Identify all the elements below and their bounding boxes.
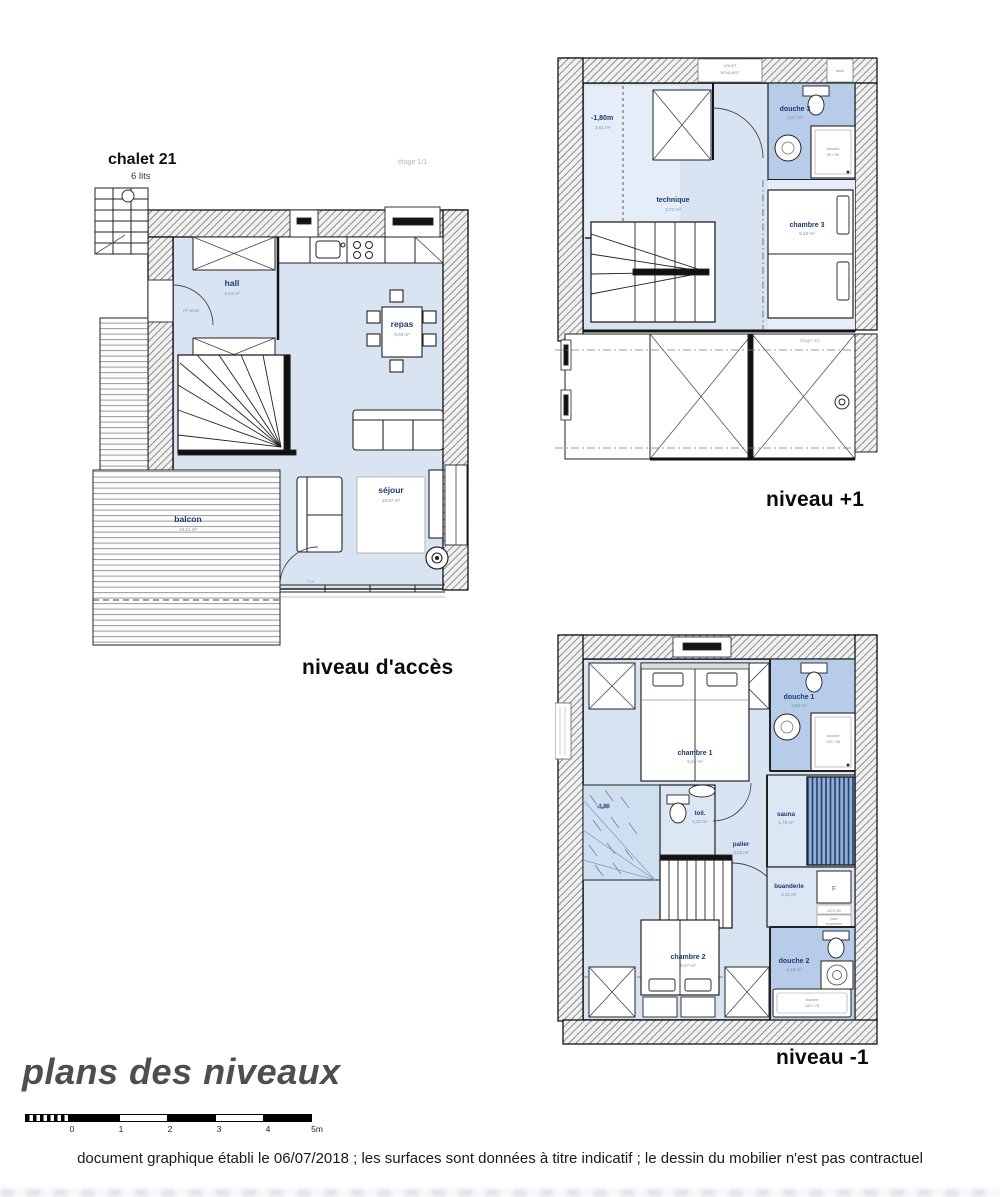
shower2-size-line2: 160 / 75 (805, 1003, 820, 1008)
pillow-icon (837, 262, 849, 300)
shower1-size-line2: 120 / 90 (826, 739, 841, 744)
toilet-icon (806, 672, 822, 692)
faucet-icon (341, 243, 345, 247)
kitchen-sink-icon (316, 241, 340, 258)
volet-annotation-line2: ROULANT (720, 70, 740, 75)
room-label-technique: technique (656, 197, 689, 204)
volet-annotation-line1: VOLET (723, 63, 737, 68)
window-annotation: fixe (307, 579, 315, 585)
bed-bench (643, 997, 677, 1017)
chair-icon (367, 311, 380, 323)
room-label-chambre1: chambre 1 (677, 750, 712, 757)
room-label-chambre3: chambre 3 (789, 222, 824, 229)
room-sauna: sauna 1,78 m² (767, 775, 855, 867)
vase-annotation-line1: vase (830, 917, 837, 921)
scale-bar-segment (215, 1114, 264, 1122)
caption-access-level: niveau d'accès (302, 656, 453, 680)
caption-level-plus1: niveau +1 (766, 488, 864, 512)
toilet-tank-icon (803, 86, 829, 96)
room-label-balcon: balcon (174, 514, 201, 524)
room-label-palier: palier (733, 841, 750, 848)
room-area-douche2: 4,19 m² (786, 967, 802, 972)
cropped-text-strip (0, 1189, 1000, 1197)
scale-bar-fine-segment (25, 1114, 72, 1122)
scale-tick: 0 (70, 1124, 75, 1134)
shower-size-line2: 90 / 90 (827, 152, 840, 157)
acv-annotation: ACV 1B (827, 909, 841, 913)
scale-tick: 4 (266, 1124, 271, 1134)
shower2-size-line1: douche (805, 997, 819, 1002)
scale-tick: 5m (311, 1124, 323, 1134)
window-annotation-box (555, 703, 571, 759)
chair-icon (423, 334, 436, 346)
toilet-icon (808, 95, 824, 115)
staircase-winder (591, 222, 715, 322)
toilet-icon (828, 938, 844, 958)
room-label-hall: hall (225, 278, 240, 288)
room-label-sejour: séjour (378, 485, 404, 495)
shower1-size-line1: douche (826, 733, 840, 738)
door-annotation: PF 90/90 (183, 308, 200, 313)
chair-icon (423, 311, 436, 323)
chalet-beds: 6 lits (131, 171, 151, 182)
room-label-niche: -1,80m (591, 115, 613, 122)
room-label-toilette: toil. (695, 810, 706, 817)
room-area-douche3: 2,97 m² (787, 115, 803, 120)
exterior-stairs (95, 188, 148, 254)
scale-bar-labels: 0 1 2 3 4 5m (25, 1124, 325, 1135)
pillow-icon (685, 979, 711, 991)
room-area-chambre2: 9,47 m² (680, 963, 696, 968)
room-area-technique: 3,71 m² (665, 207, 681, 212)
pillow-icon (707, 673, 737, 686)
room-area-toilette: 1,32 m² (692, 819, 708, 824)
staircase-straight (660, 855, 732, 928)
bed-bench (681, 997, 715, 1017)
scale-bar-segment (119, 1114, 168, 1122)
tv-bench (429, 470, 443, 538)
washbasin-icon (775, 135, 801, 161)
pillow-icon (649, 979, 675, 991)
scale-bar-segment (263, 1114, 312, 1122)
scale-bar-segment (71, 1114, 120, 1122)
disclaimer-note: document graphique établi le 06/07/2018 … (0, 1150, 1000, 1167)
caption-level-minus1: niveau -1 (776, 1046, 869, 1070)
room-area-douche1: 3,50 m² (791, 703, 807, 708)
seuil-annotation: seuil (836, 68, 844, 73)
chair-icon (390, 290, 403, 302)
room-buanderie: F ACV 1B vase expansion buanderie 2,31 m… (767, 867, 855, 928)
headboard (641, 663, 749, 669)
room-area-hall: 4,34 m² (224, 291, 240, 296)
room-label-chambre2: chambre 2 (670, 954, 705, 961)
toilet-icon (670, 803, 686, 823)
staircase-winder (178, 355, 296, 455)
room-chambre3: chambre 3 8,10 m² (763, 180, 855, 330)
room-label-douche1: douche 1 (784, 694, 815, 701)
room-douche2: douche 2 4,19 m² douche 160 / 75 (770, 927, 855, 1020)
stage-note-access: étage 1/1 (398, 159, 427, 166)
pillow-icon (837, 196, 849, 234)
room-area-chambre3: 8,10 m² (799, 231, 815, 236)
room-area-repas: 9,03 m² (394, 332, 410, 337)
floorplan-level-plus1: VOLET ROULANT seuil -1,80m 2,01 m² techn… (555, 50, 885, 495)
floorplan-level-minus1: chambre 1 9,26 m² douche 120 / 90 douche… (555, 625, 885, 1055)
scale-tick: 3 (217, 1124, 222, 1134)
room-label-sauna: sauna (777, 811, 795, 818)
room-douche1: douche 120 / 90 douche 1 3,50 m² (770, 659, 855, 771)
wardrobe-icon (653, 90, 711, 160)
room-area-sejour: 18,97 m² (382, 498, 401, 503)
f-annotation: F (832, 886, 836, 893)
scale-bar: 0 1 2 3 4 5m (25, 1114, 325, 1135)
sloped-storage: -1,80 (583, 785, 660, 880)
room-label-buanderie: buanderie (774, 883, 804, 890)
room-area-niche: 2,01 m² (595, 125, 611, 130)
room-douche3: douche 90 / 90 douche 3 2,97 m² (768, 83, 855, 180)
washbasin-icon (689, 785, 715, 797)
vase-annotation-line2: expansion (826, 922, 842, 926)
room-area-sauna: 1,78 m² (778, 820, 794, 825)
room-area-balcon: 19,21 m² (179, 527, 198, 532)
sauna-bench-icon (807, 777, 855, 865)
room-label-repas: repas (391, 319, 414, 329)
floorplan-access-level: hall 4,34 m² PF 90/90 balcon 19,21 m² (85, 185, 480, 655)
sofa-icon (353, 410, 443, 450)
plan-sheet: chalet 21 6 lits étage 1/1 (0, 0, 1000, 1197)
room-area-buanderie: 2,31 m² (781, 892, 797, 897)
scale-tick: 1 (119, 1124, 124, 1134)
room-area-chambre1: 9,26 m² (687, 759, 703, 764)
chair-icon (367, 334, 380, 346)
roof-void-section (555, 334, 877, 459)
room-area-palier: 2,53 m² (733, 850, 749, 855)
chalet-title: chalet 21 (108, 151, 176, 169)
pillow-icon (653, 673, 683, 686)
scale-tick: 2 (168, 1124, 173, 1134)
room-label-douche2: douche 2 (779, 958, 810, 965)
sheet-title: plans des niveaux (22, 1051, 341, 1093)
room-toilette: toil. 1,32 m² (660, 785, 715, 860)
stage-note-plus1: étage 3/3 (800, 338, 820, 344)
room-label-douche3: douche 3 (780, 106, 811, 113)
scale-bar-segment (167, 1114, 216, 1122)
chair-icon (390, 360, 403, 372)
washbasin-icon (774, 714, 800, 740)
height-annotation: -1,80 (597, 804, 610, 810)
shower-size-line1: douche (826, 146, 840, 151)
toilet-tank-icon (801, 663, 827, 673)
kitchen-counter (278, 237, 443, 263)
